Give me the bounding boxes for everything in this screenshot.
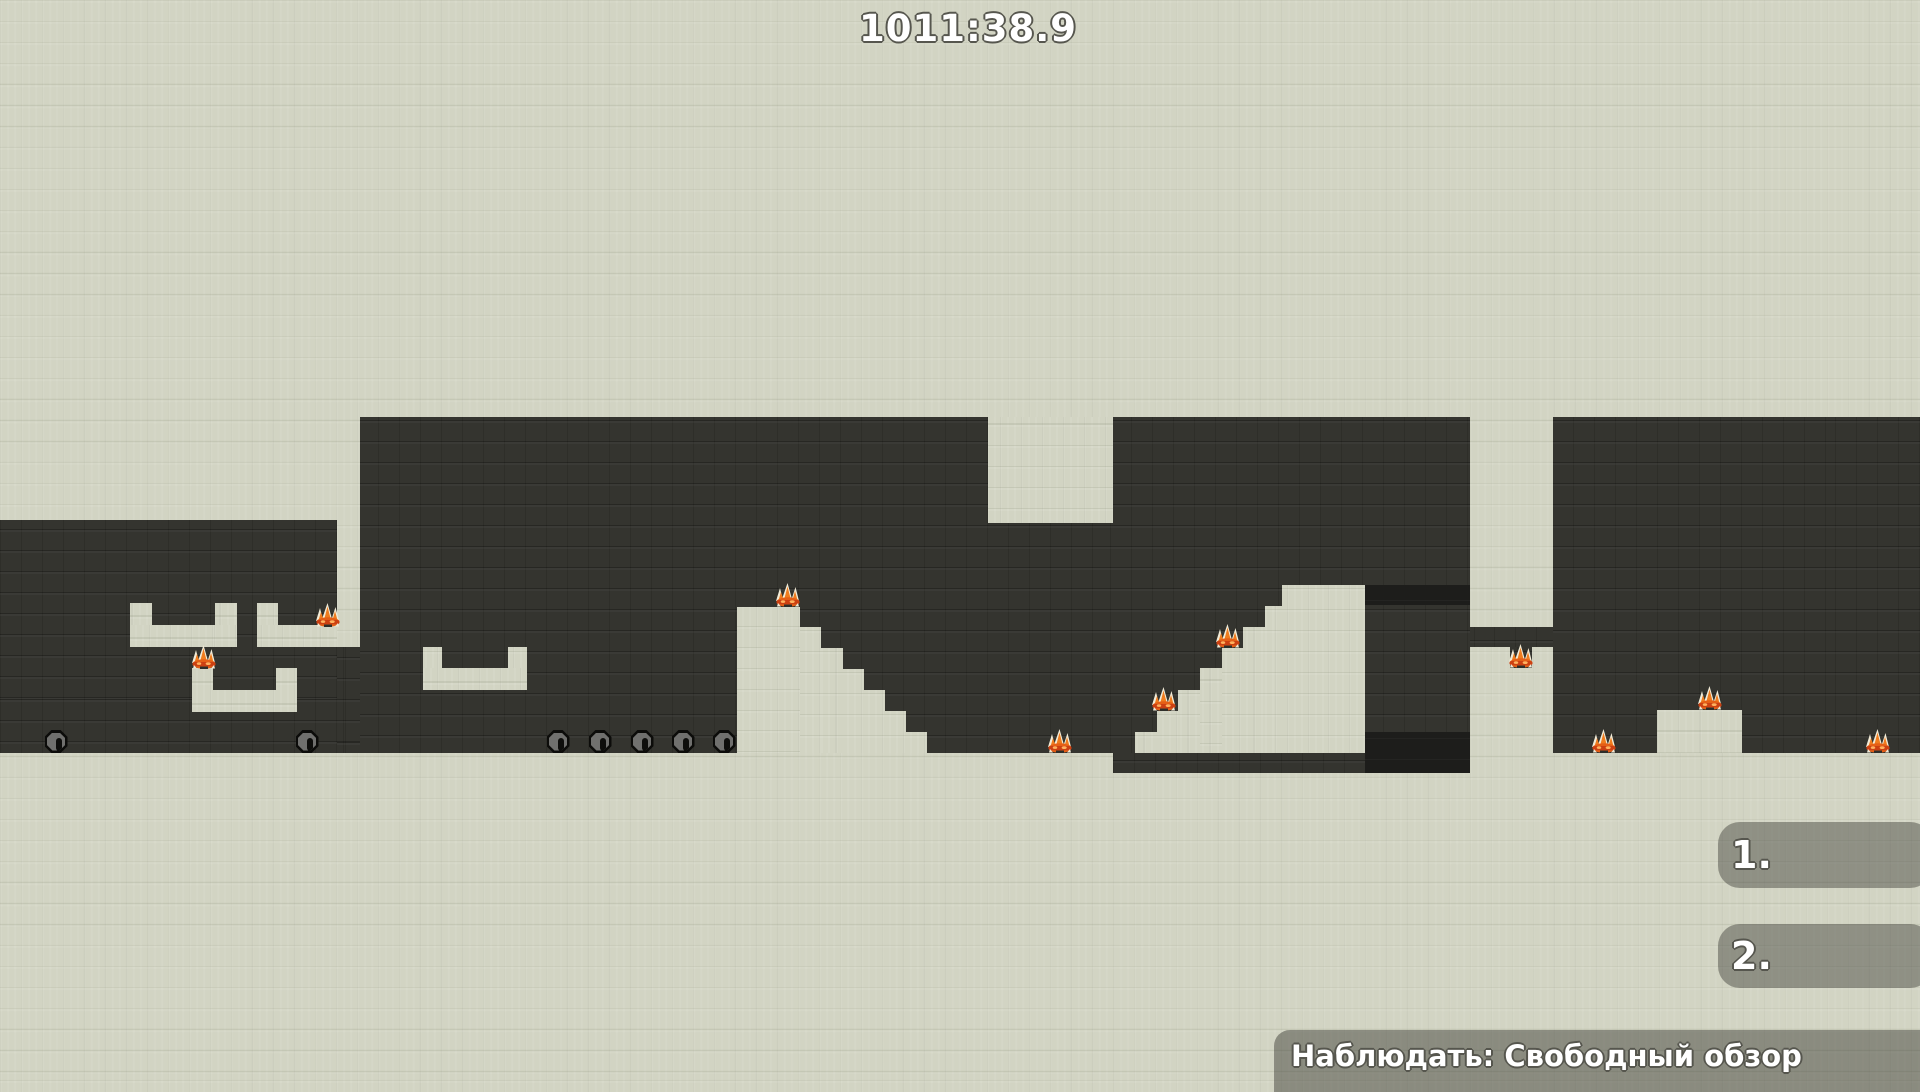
- plug-face: [715, 733, 733, 751]
- plug-face: [674, 733, 692, 751]
- solid-platform: [508, 647, 527, 668]
- cave-area: [337, 647, 360, 753]
- plug-socket: [45, 730, 68, 753]
- solid-platform: [423, 668, 527, 690]
- solid-platform: [1135, 732, 1157, 753]
- scoreboard-rank-1: 1.: [1731, 833, 1772, 877]
- dark-tunnel: [1365, 585, 1470, 605]
- solid-platform: [130, 603, 152, 625]
- game-timer: 1011:38.9: [859, 7, 1077, 50]
- spectate-mode-label: Наблюдать: Свободный обзор: [1291, 1039, 1802, 1073]
- flame-icon: [775, 583, 801, 607]
- flame-hazard: [315, 603, 341, 627]
- cave-area: [1113, 753, 1365, 773]
- plug-face: [591, 733, 609, 751]
- solid-platform: [1200, 668, 1222, 753]
- scoreboard-row-1: 1.: [1718, 822, 1920, 888]
- game-background: { "hud": { "timer": "1011:38.9", "scoreb…: [0, 0, 1920, 1080]
- flame-hazard: [1865, 729, 1891, 753]
- solid-platform: [257, 625, 337, 647]
- solid-platform: [1243, 627, 1265, 753]
- spectate-mode-bar: Наблюдать: Свободный обзор: [1274, 1030, 1920, 1092]
- scoreboard-row-2: 2.: [1718, 924, 1920, 988]
- flame-hazard: [1151, 687, 1177, 711]
- solid-platform: [864, 690, 885, 753]
- flame-hazard: [1591, 729, 1617, 753]
- plug-face: [633, 733, 651, 751]
- flame-hazard: [1508, 644, 1534, 668]
- flame-hazard: [1697, 686, 1723, 710]
- plug-face: [549, 733, 567, 751]
- cave-area: [1553, 417, 1920, 753]
- solid-platform: [423, 647, 442, 668]
- solid-platform: [843, 669, 864, 753]
- plug-socket: [713, 730, 736, 753]
- solid-platform: [1157, 711, 1178, 753]
- flame-hazard: [775, 583, 801, 607]
- plug-slot: [56, 738, 62, 751]
- plug-slot: [600, 738, 606, 751]
- flame-icon: [1215, 624, 1241, 648]
- plug-socket: [547, 730, 570, 753]
- solid-platform: [130, 625, 237, 647]
- solid-platform: [215, 603, 237, 625]
- flame-icon: [1865, 729, 1891, 753]
- solid-platform: [988, 417, 1113, 523]
- plug-socket: [672, 730, 695, 753]
- plug-slot: [683, 738, 689, 751]
- solid-platform: [276, 668, 297, 690]
- plug-slot: [558, 738, 564, 751]
- solid-platform: [800, 627, 821, 753]
- plug-face: [47, 733, 65, 751]
- flame-icon: [1047, 729, 1073, 753]
- solid-platform: [1657, 710, 1742, 753]
- solid-platform: [1178, 690, 1200, 753]
- solid-platform: [737, 607, 800, 753]
- solid-platform: [821, 648, 843, 753]
- flame-hazard: [1215, 624, 1241, 648]
- flame-hazard: [1047, 729, 1073, 753]
- plug-slot: [642, 738, 648, 751]
- plug-slot: [307, 738, 313, 751]
- flame-icon: [1151, 687, 1177, 711]
- game-viewport[interactable]: [0, 0, 1920, 1080]
- flame-icon: [1697, 686, 1723, 710]
- plug-slot: [724, 738, 730, 751]
- solid-platform: [1265, 606, 1282, 753]
- flame-icon: [191, 645, 217, 669]
- dark-tunnel: [1365, 732, 1470, 773]
- solid-platform: [1282, 585, 1365, 753]
- scoreboard-rank-2: 2.: [1731, 934, 1772, 978]
- plug-socket: [589, 730, 612, 753]
- flame-icon: [1508, 644, 1534, 668]
- plug-socket: [631, 730, 654, 753]
- solid-platform: [257, 603, 278, 625]
- plug-face: [298, 733, 316, 751]
- plug-socket: [296, 730, 319, 753]
- solid-platform: [1222, 648, 1243, 753]
- solid-platform: [885, 711, 906, 753]
- solid-platform: [906, 732, 927, 753]
- flame-icon: [1591, 729, 1617, 753]
- solid-platform: [192, 668, 213, 690]
- flame-hazard: [191, 645, 217, 669]
- flame-icon: [315, 603, 341, 627]
- solid-platform: [192, 690, 297, 712]
